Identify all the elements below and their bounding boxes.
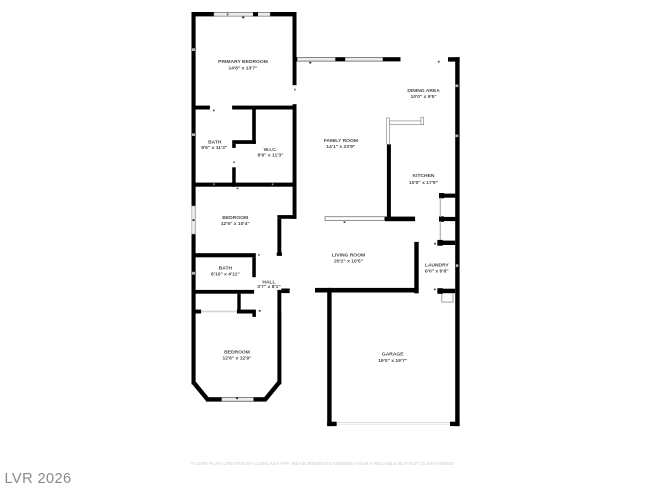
svg-text:FLOOR PLAN CREATED BY CUBICASA: FLOOR PLAN CREATED BY CUBICASA APP. MEAS…: [191, 461, 454, 467]
svg-text:BATH: BATH: [208, 140, 222, 146]
svg-text:14'1" x 23'9": 14'1" x 23'9": [326, 144, 356, 150]
svg-text:12'6" x 12'9": 12'6" x 12'9": [223, 356, 253, 362]
svg-text:BEDROOM: BEDROOM: [224, 350, 250, 356]
svg-text:KITCHEN: KITCHEN: [413, 173, 435, 179]
svg-text:19'0" x 19'7": 19'0" x 19'7": [378, 358, 408, 364]
svg-text:DINING AREA: DINING AREA: [407, 88, 440, 94]
svg-text:LIVING ROOM: LIVING ROOM: [332, 252, 365, 258]
svg-text:BEDROOM: BEDROOM: [222, 215, 248, 221]
svg-text:6'0" x 6'8": 6'0" x 6'8": [425, 269, 449, 275]
svg-text:BATH: BATH: [219, 266, 233, 272]
svg-text:LAUNDRY: LAUNDRY: [425, 263, 450, 269]
svg-text:8'10" x 4'11": 8'10" x 4'11": [211, 271, 240, 277]
svg-text:GARAGE: GARAGE: [382, 351, 404, 357]
svg-text:FAMILY ROOM: FAMILY ROOM: [324, 138, 358, 144]
svg-text:12'5" x 10'4": 12'5" x 10'4": [221, 221, 251, 227]
svg-text:8'9" x 11'3": 8'9" x 11'3": [258, 153, 285, 159]
svg-text:8'6" x 11'3": 8'6" x 11'3": [201, 145, 228, 151]
svg-text:10'0" x 17'9": 10'0" x 17'9": [409, 180, 439, 186]
svg-text:10'0" x 9'5": 10'0" x 9'5": [410, 94, 437, 100]
svg-text:LVR 2026: LVR 2026: [5, 471, 72, 487]
svg-text:W.I.C.: W.I.C.: [264, 147, 278, 153]
svg-text:20'2" x 10'5": 20'2" x 10'5": [334, 258, 364, 264]
svg-text:14'8" x 13'7": 14'8" x 13'7": [229, 66, 259, 72]
svg-text:PRIMARY BEDROOM: PRIMARY BEDROOM: [218, 59, 268, 65]
svg-text:3'7" x 8'1": 3'7" x 8'1": [257, 284, 281, 290]
